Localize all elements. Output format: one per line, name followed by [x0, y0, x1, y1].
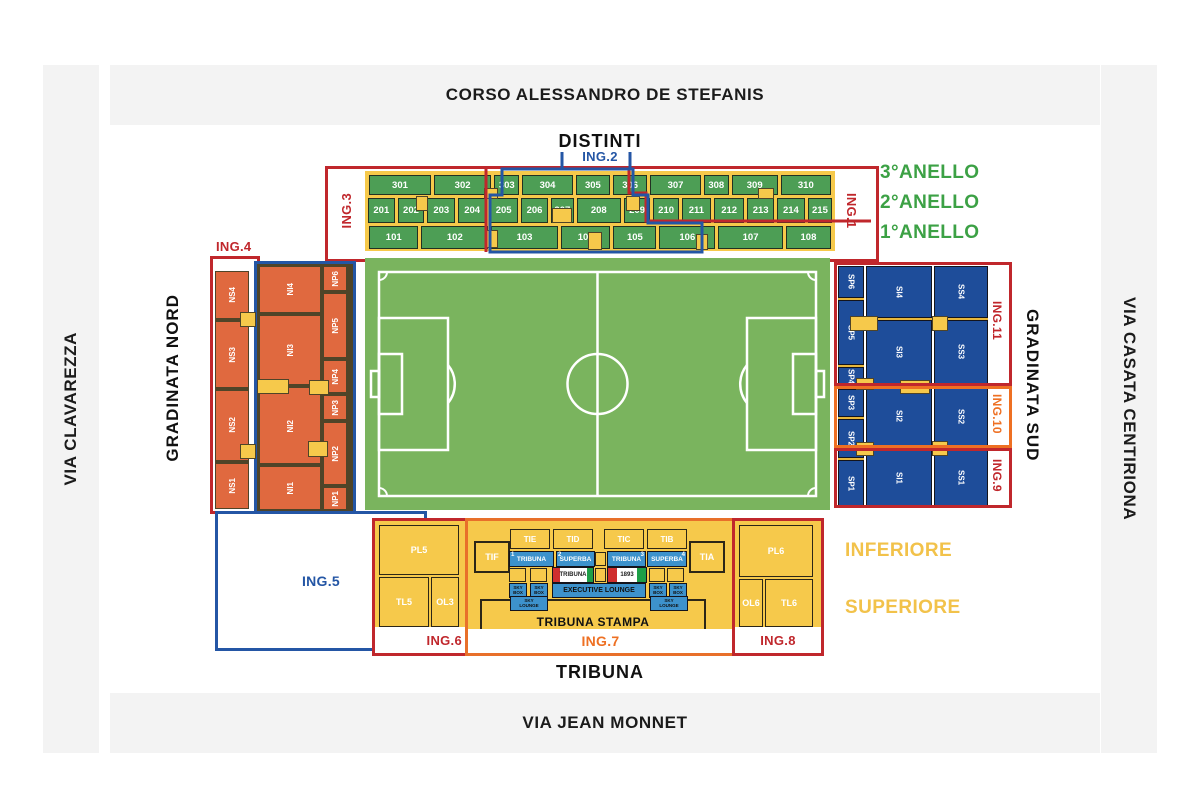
ing6-area: ING.6 — [375, 627, 467, 653]
sector-107[interactable]: 107 — [718, 226, 783, 249]
tribuna-left-block: PL5 TL5 OL3 ING.6 — [372, 518, 470, 656]
ing11-label-area: ING.11 — [988, 266, 1006, 376]
box-tribuna-1893-left[interactable]: TRIBUNA — [552, 567, 594, 583]
stair-connector — [850, 316, 878, 331]
stair-connector — [856, 442, 874, 456]
stadium-map: CORSO ALESSANDRO DE STEFANIS VIA JEAN MO… — [0, 0, 1200, 800]
box-number: 2 — [558, 552, 561, 558]
sector-ol6[interactable]: OL6 — [739, 579, 763, 627]
sector-label: SS3 — [957, 344, 966, 359]
sector-tic[interactable]: TIC — [604, 529, 644, 549]
ing2-label: ING.2 — [545, 149, 655, 164]
sector-label: NS2 — [228, 417, 237, 433]
ing8-area: ING.8 — [735, 627, 821, 653]
ing3-label: ING.3 — [339, 193, 354, 228]
ing10-label: ING.10 — [990, 394, 1004, 434]
street-top: CORSO ALESSANDRO DE STEFANIS — [110, 65, 1100, 125]
box-superba-4[interactable]: SUPERBA4 — [647, 551, 687, 567]
sector-label: SP4 — [847, 369, 856, 384]
gradinata-nord-title: GRADINATA NORD — [163, 294, 183, 462]
sky-lounge[interactable]: SKYLOUNGE — [510, 596, 548, 611]
sector-ni3[interactable]: NI3 — [259, 315, 321, 385]
sector-label: SI2 — [895, 410, 904, 422]
stair-connector — [856, 378, 874, 390]
box-label: TRIBUNA — [517, 556, 546, 563]
sector-label: SS4 — [957, 284, 966, 299]
sector-ss2[interactable]: SS2 — [934, 386, 988, 448]
superiore-label: SUPERIORE — [845, 597, 961, 619]
sector-206[interactable]: 206 — [521, 198, 548, 223]
sector-label: NS4 — [228, 287, 237, 303]
nord-ns-group: NS4 NS3 NS2 NS1 — [210, 256, 260, 514]
sky-box-label: BOX — [513, 591, 523, 596]
ing9-label-area: ING.9 — [988, 450, 1006, 500]
stair-connector — [588, 232, 602, 250]
stair-connector — [595, 552, 606, 566]
sector-215[interactable]: 215 — [808, 198, 832, 223]
stair-connector — [626, 196, 640, 211]
sector-label: NP4 — [331, 369, 340, 385]
sector-label: TL5 — [396, 597, 412, 607]
sector-label: TIB — [661, 535, 674, 544]
sector-212[interactable]: 212 — [714, 198, 744, 223]
sector-label: NI1 — [286, 482, 295, 494]
sector-203[interactable]: 203 — [427, 198, 455, 223]
gradinata-nord-title-area: GRADINATA NORD — [155, 278, 191, 478]
sector-304[interactable]: 304 — [522, 175, 572, 195]
sector-np3[interactable]: NP3 — [323, 395, 347, 420]
stair-connector — [932, 441, 948, 456]
tribuna-box — [649, 568, 665, 582]
tricolor-label: 1893 — [617, 568, 637, 582]
sector-208[interactable]: 208 — [577, 198, 621, 223]
sector-ol3[interactable]: OL3 — [431, 577, 459, 627]
sector-103[interactable]: 103 — [491, 226, 558, 249]
street-left-label: VIA CLAVAREZZA — [61, 332, 81, 486]
tribuna-box — [667, 568, 684, 582]
sector-pl5[interactable]: PL5 — [379, 525, 459, 575]
sector-tif[interactable]: TIF — [474, 541, 510, 573]
tricolor-green — [637, 568, 646, 582]
gradinata-sud-title: GRADINATA SUD — [1022, 309, 1042, 461]
sector-label: SS2 — [957, 409, 966, 424]
tricolor-label: TRIBUNA — [560, 568, 587, 582]
sector-si2[interactable]: SI2 — [866, 386, 932, 448]
football-pitch — [365, 258, 830, 510]
tribuna-box — [530, 568, 547, 582]
sector-label: TIA — [700, 552, 715, 562]
ing8-label: ING.8 — [760, 633, 795, 648]
sector-307[interactable]: 307 — [650, 175, 700, 195]
ing1-label: ING.1 — [844, 193, 859, 228]
ing4-label: ING.4 — [216, 239, 251, 254]
sector-213[interactable]: 213 — [747, 198, 774, 223]
street-right: VIA CASATA CENTIRIONA — [1101, 65, 1157, 753]
box-number: 4 — [682, 552, 685, 558]
ing9-label: ING.9 — [990, 459, 1004, 492]
box-number: 1 — [511, 552, 514, 558]
nord-ns-column: NS4 NS3 NS2 NS1 — [215, 271, 249, 509]
sector-310[interactable]: 310 — [781, 175, 831, 195]
sector-label: SI3 — [895, 346, 904, 358]
sky-lounge-label: LOUNGE — [519, 604, 538, 609]
executive-lounge-label: EXECUTIVE LOUNGE — [563, 587, 635, 594]
sector-label: SI4 — [895, 286, 904, 298]
sector-sp3[interactable]: SP3 — [838, 389, 864, 418]
anello-2-row: 201 202 203 204 205 206 207 208 209 210 … — [368, 198, 832, 223]
sector-label: NS1 — [228, 478, 237, 494]
sector-204[interactable]: 204 — [458, 198, 486, 223]
sky-lounge[interactable]: SKYLOUNGE — [650, 596, 688, 611]
sector-label: OL6 — [742, 598, 760, 608]
stair-connector — [484, 188, 498, 199]
box-label: SUPERBA — [560, 556, 592, 563]
stair-connector — [416, 196, 428, 211]
sector-label: NP5 — [331, 318, 340, 334]
stair-connector — [696, 234, 708, 250]
anello-1-label: 1°ANELLO — [880, 222, 979, 244]
sud-ss-column: SS4 SS3 SS2 SS1 — [934, 266, 988, 506]
sector-205[interactable]: 205 — [489, 198, 518, 223]
sector-label: PL5 — [411, 545, 428, 555]
distinti-section: ING.3 ING.1 301 302 303 304 305 306 307 … — [325, 166, 879, 262]
tribuna-main-block: TIF TIA TIE TID TIC TIB 1TRIBUNA 2SUPERB… — [465, 518, 736, 656]
sector-tie[interactable]: TIE — [510, 529, 550, 549]
ing7-label: ING.7 — [581, 633, 619, 649]
sector-210[interactable]: 210 — [653, 198, 678, 223]
stair-connector — [240, 312, 256, 327]
sector-ni4[interactable]: NI4 — [259, 266, 321, 313]
sector-105[interactable]: 105 — [613, 226, 656, 249]
sector-np1[interactable]: NP1 — [323, 487, 347, 510]
sector-label: TIE — [524, 535, 536, 544]
sector-label: NI4 — [286, 283, 295, 295]
sector-101[interactable]: 101 — [369, 226, 418, 249]
tricolor-red — [608, 568, 617, 582]
sector-sp6[interactable]: SP6 — [838, 266, 864, 298]
sector-214[interactable]: 214 — [777, 198, 805, 223]
stair-connector — [309, 380, 329, 395]
anello-3-label: 3°ANELLO — [880, 162, 979, 184]
sector-ns3[interactable]: NS3 — [215, 321, 249, 387]
sector-label: TID — [567, 535, 580, 544]
sector-302[interactable]: 302 — [434, 175, 491, 195]
stair-connector — [240, 444, 256, 459]
box-number: 3 — [641, 552, 644, 558]
stair-connector — [758, 188, 774, 199]
inferiore-label: INFERIORE — [845, 540, 952, 562]
sky-box-label: BOX — [673, 591, 683, 596]
sector-label: NP3 — [331, 400, 340, 416]
street-right-label: VIA CASATA CENTIRIONA — [1119, 297, 1139, 520]
sector-303[interactable]: 303 — [494, 175, 519, 195]
sky-box-label: BOX — [534, 591, 544, 596]
sector-label: NS3 — [228, 347, 237, 363]
stair-connector — [900, 380, 930, 394]
box-tribuna-1[interactable]: 1TRIBUNA — [509, 551, 554, 567]
stair-connector — [257, 379, 289, 394]
sector-tl5[interactable]: TL5 — [379, 577, 429, 627]
street-bottom: VIA JEAN MONNET — [110, 693, 1100, 753]
stair-connector — [486, 230, 498, 248]
tribuna-box — [595, 568, 606, 582]
sector-si4[interactable]: SI4 — [866, 266, 932, 318]
stair-connector — [552, 208, 572, 223]
sector-102[interactable]: 102 — [421, 226, 488, 249]
tribuna-box — [509, 568, 526, 582]
sector-label: SS1 — [957, 470, 966, 485]
sector-tib[interactable]: TIB — [647, 529, 687, 549]
sector-sp5[interactable]: SP5 — [838, 300, 864, 365]
sector-301[interactable]: 301 — [369, 175, 431, 195]
sector-label: SP6 — [847, 274, 856, 289]
sky-lounge-label: LOUNGE — [659, 604, 678, 609]
sector-ns1[interactable]: NS1 — [215, 463, 249, 509]
ing11-label: ING.11 — [990, 301, 1004, 340]
pitch-markings — [365, 258, 830, 510]
box-label: SUPERBA — [651, 556, 683, 563]
ing1-label-area: ING.1 — [835, 171, 868, 251]
box-label: TRIBUNA — [612, 556, 641, 563]
sector-306[interactable]: 306 — [613, 175, 647, 195]
sector-label: TIF — [485, 552, 499, 562]
tricolor-green — [587, 568, 594, 582]
sector-tid[interactable]: TID — [553, 529, 593, 549]
sector-label: SP3 — [847, 395, 856, 410]
box-tribuna-1893-right[interactable]: 1893 — [607, 567, 647, 583]
sector-ss4[interactable]: SS4 — [934, 266, 988, 318]
ing10-label-area: ING.10 — [988, 388, 1006, 440]
tribuna-right-block: PL6 OL6 TL6 ING.8 — [732, 518, 824, 656]
sector-label: NP1 — [331, 491, 340, 507]
sector-tia[interactable]: TIA — [689, 541, 725, 573]
sector-np6[interactable]: NP6 — [323, 266, 347, 291]
sector-tl6[interactable]: TL6 — [765, 579, 813, 627]
sector-label: TL6 — [781, 598, 797, 608]
street-left: VIA CLAVAREZZA — [43, 65, 99, 753]
ing6-label: ING.6 — [427, 633, 462, 648]
sector-label: NI3 — [286, 344, 295, 356]
sector-211[interactable]: 211 — [682, 198, 711, 223]
ing7-area: ING.7 — [468, 629, 733, 653]
sector-sp1[interactable]: SP1 — [838, 460, 864, 506]
sector-201[interactable]: 201 — [368, 198, 395, 223]
street-top-label: CORSO ALESSANDRO DE STEFANIS — [446, 85, 764, 105]
sector-104[interactable]: 104 — [561, 226, 610, 249]
anello-2-label: 2°ANELLO — [880, 192, 979, 214]
sector-ss1[interactable]: SS1 — [934, 449, 988, 506]
sector-label: NI2 — [286, 420, 295, 432]
stair-connector — [932, 316, 948, 331]
stair-connector — [308, 441, 328, 457]
sector-label: SP1 — [847, 476, 856, 491]
sector-si1[interactable]: SI1 — [866, 449, 932, 506]
sector-308[interactable]: 308 — [704, 175, 729, 195]
executive-lounge[interactable]: EXECUTIVE LOUNGE — [552, 583, 646, 598]
ing5-label: ING.5 — [302, 573, 340, 589]
sector-label: OL3 — [436, 597, 454, 607]
sector-label: SI1 — [895, 472, 904, 484]
sector-label: PL6 — [768, 546, 785, 556]
sector-ni1[interactable]: NI1 — [259, 466, 321, 510]
sector-label: TIC — [618, 535, 631, 544]
box-tribuna-3[interactable]: TRIBUNA3 — [607, 551, 646, 567]
street-bottom-label: VIA JEAN MONNET — [522, 713, 687, 733]
sector-305[interactable]: 305 — [576, 175, 610, 195]
sector-label: NP6 — [331, 271, 340, 287]
tribuna-stampa-label: TRIBUNA STAMPA — [537, 615, 650, 629]
sector-label: NP2 — [331, 446, 340, 462]
box-superba-2[interactable]: 2SUPERBA — [556, 551, 595, 567]
sector-np5[interactable]: NP5 — [323, 293, 347, 358]
sector-label: SP2 — [847, 431, 856, 446]
sector-pl6[interactable]: PL6 — [739, 525, 813, 577]
gradinata-sud-title-area: GRADINATA SUD — [1014, 285, 1050, 485]
ing3-label-area: ING.3 — [330, 171, 363, 251]
tribuna-title: TRIBUNA — [450, 662, 750, 683]
sky-box-label: BOX — [653, 591, 663, 596]
sector-108[interactable]: 108 — [786, 226, 831, 249]
